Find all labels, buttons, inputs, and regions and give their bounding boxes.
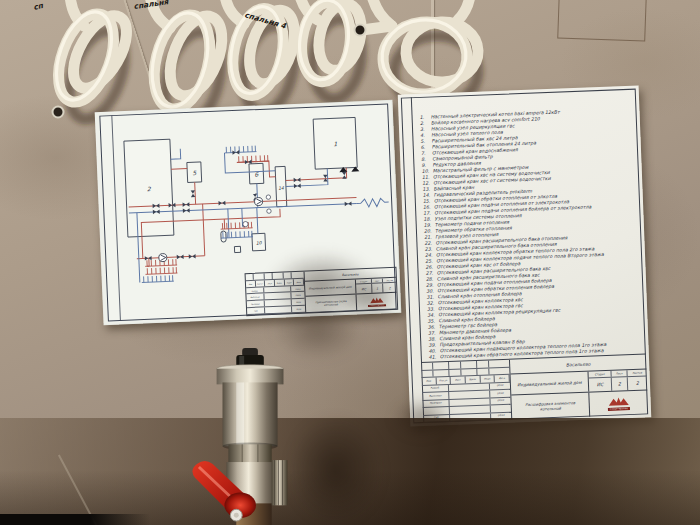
titleblock-header-cell: Изм [422,377,437,384]
small-component [234,246,240,252]
titleblock-header-cell: Дата [294,279,304,285]
sheets-value: 2 [628,376,647,390]
titleblock-header-cell: Кол.уч [256,280,266,286]
titleblock-header-cell: Подп [285,279,295,285]
company-logo: САНКТ-ТЕХНИК [589,390,648,416]
role-label: ГИП [247,308,265,315]
vent-body-cylinder [223,382,278,446]
role-label: Выполнил [246,294,264,301]
company-logo: САНКТ-ТЕХНИК [357,293,398,311]
air-vent-valve-assembly [178,348,328,525]
titleblock-header-cell: №док [466,376,481,383]
role-label: Разраб. [246,287,264,294]
logo-icon [606,396,630,407]
role-date: 03/23 [490,397,510,404]
sheets-label: Листов [627,369,646,376]
titleblock-header-cell: Подп [480,375,495,382]
air-separator [221,231,226,242]
stage-label: Стадия [588,371,611,378]
stage-label: Стадия [356,279,372,284]
valve-collar [272,460,288,505]
logo-icon [369,296,385,304]
cable-end-cap [53,107,64,118]
role-date: 03/23 [291,285,304,291]
list-item-number: 41 [429,354,440,360]
titleblock-header-cell: Лист [265,280,275,286]
sheet-value: 2 [612,377,628,391]
sheet-label: Лист [611,370,627,377]
body-specular [236,382,244,446]
titleblock-header-cell: Дата [495,375,510,382]
role-date: 03/23 [490,382,510,389]
titleblock-header-cell: Изм [246,281,256,287]
document-title: Расшифровка элементов котельной [511,393,590,420]
role-date: 03/23 [490,390,510,397]
schematic-document: 1 2 5 6 10 14 ИзмКол.учЛист№докПодпДата … [95,100,402,325]
photo-scene: сп спальня спальня 4 [0,0,700,525]
bottom-dark-strip [0,514,150,525]
cable-label: сп [33,1,45,12]
titleblock-header-cell: Кол.уч [436,377,451,384]
vent-flange [217,369,284,385]
label-separator-14: 14 [278,185,284,190]
role-label: Разраб. [422,384,449,392]
stage-value: ИС [589,378,612,392]
logo-text: САНКТ-ТЕХНИК [368,304,386,307]
label-electric-boiler: 1 [333,140,337,147]
connector-hex [228,444,271,464]
titleblock-header-cell: Лист [451,376,466,383]
sheets-label: Листов [383,278,396,283]
document-corner-shadow [392,398,452,438]
titleblock-right: ИзмКол.учЛист№докПодпДата Разраб.03/23 В… [421,353,648,423]
legend-document: 1 Настенный электрический котел baxi amp… [398,85,652,426]
sheet-label: Лист [372,278,383,282]
logo-text: САНКТ-ТЕХНИК [608,407,630,411]
titleblock-header-cell: №док [275,279,285,285]
cable-end-cap [355,25,366,36]
element-list: 1 Настенный электрический котел baxi amp… [420,107,642,361]
handle-screw-center [234,513,239,518]
role-date: 03/23 [291,292,304,298]
role-label: Проверил [247,301,265,308]
